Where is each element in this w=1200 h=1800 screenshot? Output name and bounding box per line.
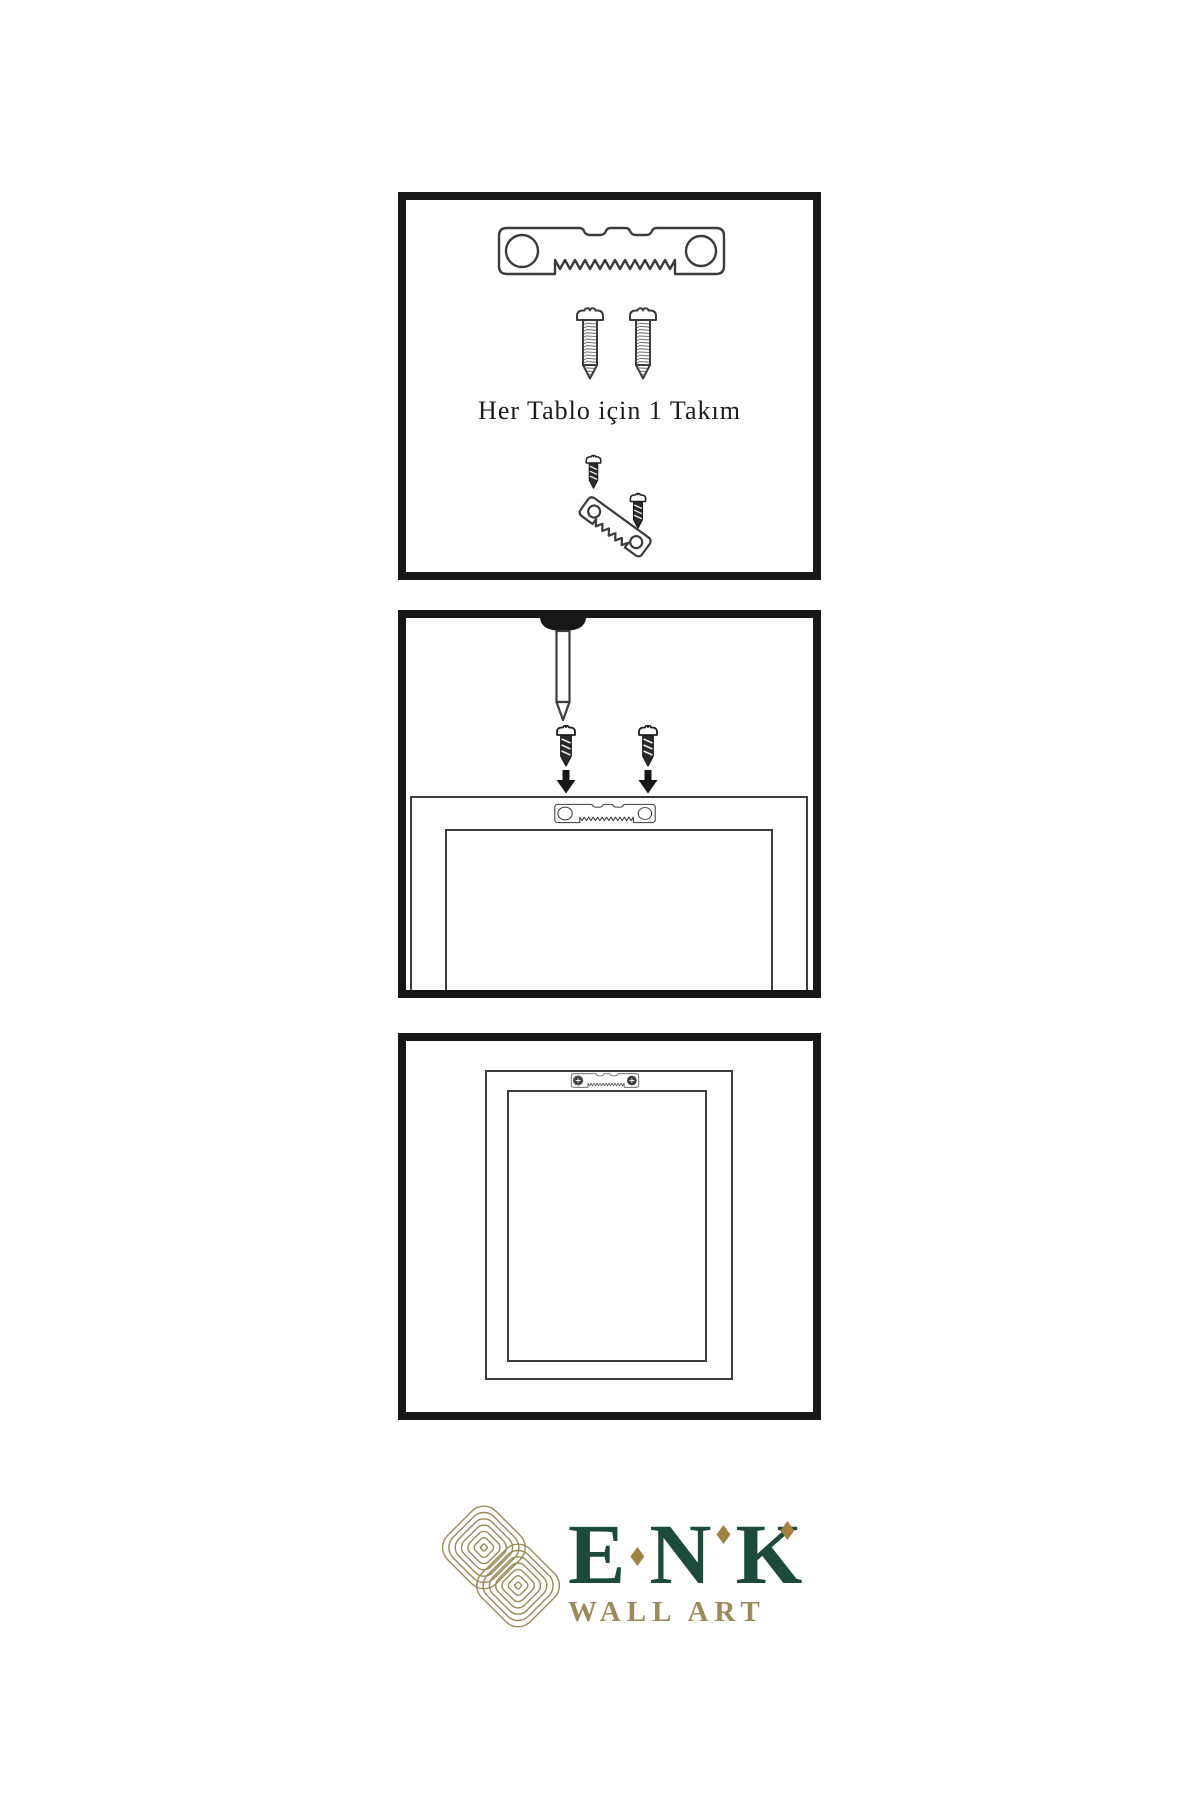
panel-wall-mounting	[398, 610, 821, 998]
mini-screw-icon	[583, 454, 604, 490]
dark-screw-icon	[635, 724, 661, 768]
panel-hardware-kit: Her Tablo için 1 Takım	[398, 192, 821, 580]
kit-caption: Her Tablo için 1 Takım	[406, 396, 813, 426]
screw-icon	[625, 306, 661, 380]
brand-letter: E	[568, 1521, 625, 1588]
dark-screw-icon	[553, 724, 579, 768]
brand-footer: E N K WALL ART	[440, 1500, 860, 1650]
panel-hung-frame	[398, 1033, 821, 1420]
down-arrow-icon	[556, 770, 576, 794]
brand-subtitle: WALL ART	[568, 1596, 794, 1629]
diamond-icon	[716, 1525, 730, 1544]
mini-screw-icon	[627, 492, 649, 530]
brand-text: E N K WALL ART	[568, 1512, 794, 1629]
brand-name: E N K	[568, 1512, 794, 1588]
brand-letter: N	[649, 1521, 711, 1588]
instruction-sheet: Her Tablo için 1 Takım E N	[0, 0, 1200, 1800]
mounted-sawtooth-hanger-icon	[570, 1072, 640, 1089]
nail-icon	[537, 618, 589, 724]
sawtooth-hanger-icon	[495, 222, 728, 280]
diamond-icon	[630, 1547, 644, 1566]
frame-inner-outline	[507, 1090, 707, 1362]
interlocking-knot-logo	[440, 1500, 562, 1633]
screw-icon	[572, 306, 608, 380]
down-arrow-icon	[638, 770, 658, 794]
frame-inner-outline	[445, 829, 773, 990]
sawtooth-hanger-icon	[553, 802, 657, 825]
